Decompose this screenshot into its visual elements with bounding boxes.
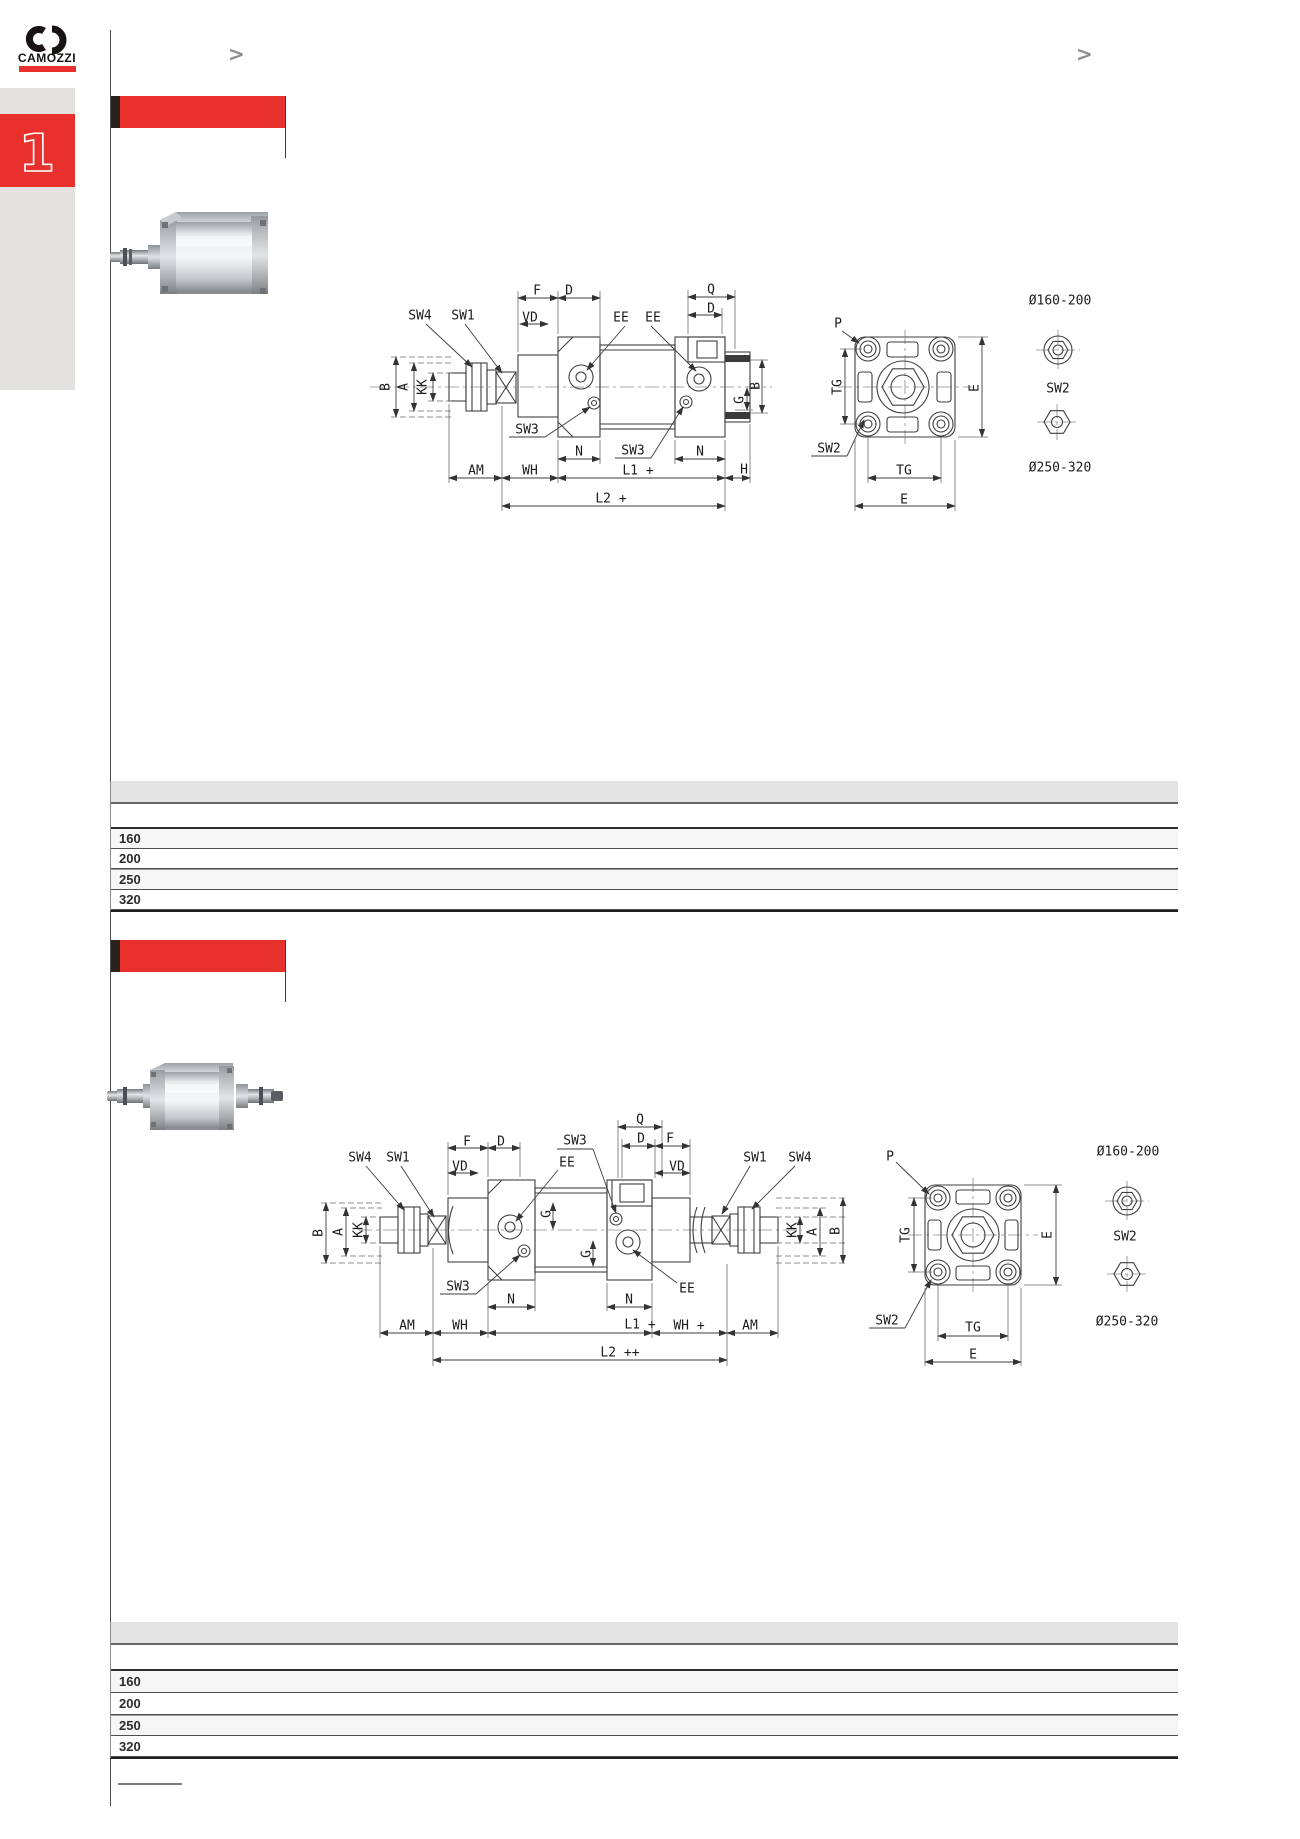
dim-label: WH xyxy=(452,1319,468,1334)
bore-size: 320 xyxy=(119,1739,141,1754)
bore-size: 250 xyxy=(119,872,141,887)
dim-label: SW3 xyxy=(515,423,538,438)
drawing2-labels: SW4SW1FDVDSW3EEQDFVDSW1SW4BAKKKKABGGSW3E… xyxy=(312,1113,1160,1363)
dim-label: L1 + xyxy=(622,464,653,479)
table2-header-band xyxy=(111,1622,1178,1645)
dim-label: SW4 xyxy=(408,309,432,324)
dim-label: SW1 xyxy=(451,309,474,324)
footnote-rule xyxy=(118,1783,182,1785)
title-bar-chip xyxy=(111,940,120,972)
dim-label: KK xyxy=(416,379,431,395)
dim-label: Ø160-200 xyxy=(1097,1145,1160,1160)
dim-label: SW1 xyxy=(386,1151,409,1166)
dim-label: F xyxy=(533,284,541,299)
dim-label: D xyxy=(565,284,573,299)
dim-label: E xyxy=(969,1348,977,1363)
dim-label: E xyxy=(968,384,983,392)
dim-label: N xyxy=(507,1293,515,1308)
dim-label: TG xyxy=(831,379,846,395)
dim-label: EE xyxy=(559,1156,575,1171)
dim-label: P xyxy=(886,1150,894,1165)
dim-label: SW3 xyxy=(446,1280,469,1295)
dim-label: Ø160-200 xyxy=(1029,294,1092,309)
table-row: 250 xyxy=(111,869,1178,890)
product-photo-single-rod-cylinder xyxy=(108,192,288,307)
dim-label: N xyxy=(625,1293,633,1308)
table-row: 320 xyxy=(111,1736,1178,1757)
dim-label: A xyxy=(397,383,412,391)
dim-label: VD xyxy=(452,1160,468,1175)
table-row: 200 xyxy=(111,849,1178,869)
nav-prev-icon[interactable]: > xyxy=(228,42,245,66)
dim-label: Ø250-320 xyxy=(1029,461,1092,476)
dim-label: L2 + xyxy=(595,492,626,507)
dim-label: SW2 xyxy=(875,1314,898,1329)
dim-label: E xyxy=(1041,1231,1056,1239)
dim-label: AM xyxy=(742,1319,758,1334)
front-view-flange xyxy=(811,330,988,511)
dim-label: KK xyxy=(786,1222,801,1238)
dim-label: B xyxy=(829,1227,844,1235)
bore-size: 200 xyxy=(119,851,141,866)
table-row: 250 xyxy=(111,1715,1178,1736)
dim-label: SW2 xyxy=(1046,382,1069,397)
dim-label: TG xyxy=(899,1227,914,1243)
table2-subheader-row xyxy=(111,1645,1178,1671)
title-bar-chip xyxy=(111,96,120,128)
chapter-number: 1 xyxy=(19,124,55,184)
bore-size: 200 xyxy=(119,1696,141,1711)
dim-label: AM xyxy=(399,1319,415,1334)
dim-label: SW2 xyxy=(1113,1230,1136,1245)
nav-next-icon[interactable]: > xyxy=(1076,42,1093,66)
dim-label: D xyxy=(497,1135,505,1150)
dim-label: B xyxy=(379,383,394,391)
dim-label: WH + xyxy=(673,1319,704,1334)
dim-label: TG xyxy=(896,464,912,479)
dim-label: L2 ++ xyxy=(600,1346,639,1361)
dim-label: WH xyxy=(522,464,538,479)
side-view-dimensions xyxy=(391,290,768,511)
flange-bolts xyxy=(856,337,953,436)
dim-label: AM xyxy=(468,464,484,479)
dim-label: H xyxy=(740,463,748,478)
dim-label: TG xyxy=(965,1321,981,1336)
catalog-page: CAMOZZI > > 1 xyxy=(0,0,1300,1839)
dim-label: VD xyxy=(669,1160,685,1175)
dim-label: D xyxy=(707,302,715,317)
dimension-table-2: 160 200 250 320 xyxy=(110,1622,1178,1759)
dim-label: Q xyxy=(707,283,715,298)
dim-label: N xyxy=(696,445,704,460)
bore-size: 250 xyxy=(119,1718,141,1733)
dim-label: SW3 xyxy=(563,1134,586,1149)
table1-subheader-row xyxy=(111,804,1178,829)
dim-label: Q xyxy=(636,1113,644,1128)
dim-label: VD xyxy=(522,311,538,326)
dim-label: G xyxy=(580,1250,595,1258)
chapter-number-outline: 1 xyxy=(0,114,75,187)
table1-header-band xyxy=(111,781,1178,804)
table-row: 320 xyxy=(111,890,1178,910)
table-row: 200 xyxy=(111,1693,1178,1715)
dim-label: G xyxy=(540,1210,555,1218)
dim-label: KK xyxy=(352,1222,367,1238)
dim-label: SW4 xyxy=(788,1151,812,1166)
dim-label: SW3 xyxy=(621,444,644,459)
dimension-table-1: 160 200 250 320 xyxy=(110,781,1178,912)
dim-label: Ø250-320 xyxy=(1096,1315,1159,1330)
bore-size: 320 xyxy=(119,892,141,907)
dim-label: D xyxy=(637,1132,645,1147)
dim-label: B xyxy=(749,382,764,390)
product-photo-through-rod-cylinder xyxy=(103,1058,288,1140)
sidebar-chapter-tab[interactable]: 1 xyxy=(0,114,75,187)
dim-label: SW4 xyxy=(348,1151,372,1166)
dim-label: F xyxy=(666,1132,674,1147)
dim-label: A xyxy=(806,1228,821,1236)
section2-bar-tail xyxy=(285,940,286,1002)
drawing-single-rod-dimensions: SW4SW1FDVDEEEEQDBAKKGBSW3SW3NNAMWHL1 +HL… xyxy=(300,225,1110,525)
table-row: 160 xyxy=(111,1671,1178,1693)
dim-label: G xyxy=(733,396,748,404)
dim-label: B xyxy=(312,1229,327,1237)
dim-label: SW1 xyxy=(743,1151,766,1166)
brand-name: CAMOZZI xyxy=(13,51,81,65)
brand-underline xyxy=(19,66,76,72)
dim-label: P xyxy=(834,317,842,332)
dim-label: F xyxy=(463,1135,471,1150)
dim-label: SW2 xyxy=(817,442,840,457)
bore-size: 160 xyxy=(119,1674,141,1689)
dim-label: E xyxy=(900,493,908,508)
dim-label: EE xyxy=(679,1282,695,1297)
bore-size: 160 xyxy=(119,831,141,846)
side-view-through-rod xyxy=(358,1180,802,1280)
dim-label: EE xyxy=(613,311,629,326)
dim-label: EE xyxy=(645,311,661,326)
section1-bar-tail xyxy=(285,96,286,158)
section1-title-bar xyxy=(111,96,285,128)
drawing-through-rod-dimensions: SW4SW1FDVDSW3EEQDFVDSW1SW4BAKKKKABGGSW3E… xyxy=(300,1110,1190,1380)
section2-title-bar xyxy=(111,940,285,972)
dim-label: L1 + xyxy=(624,1318,655,1333)
dim-label: A xyxy=(332,1228,347,1236)
dim-label: N xyxy=(575,445,583,460)
table-row: 160 xyxy=(111,829,1178,849)
